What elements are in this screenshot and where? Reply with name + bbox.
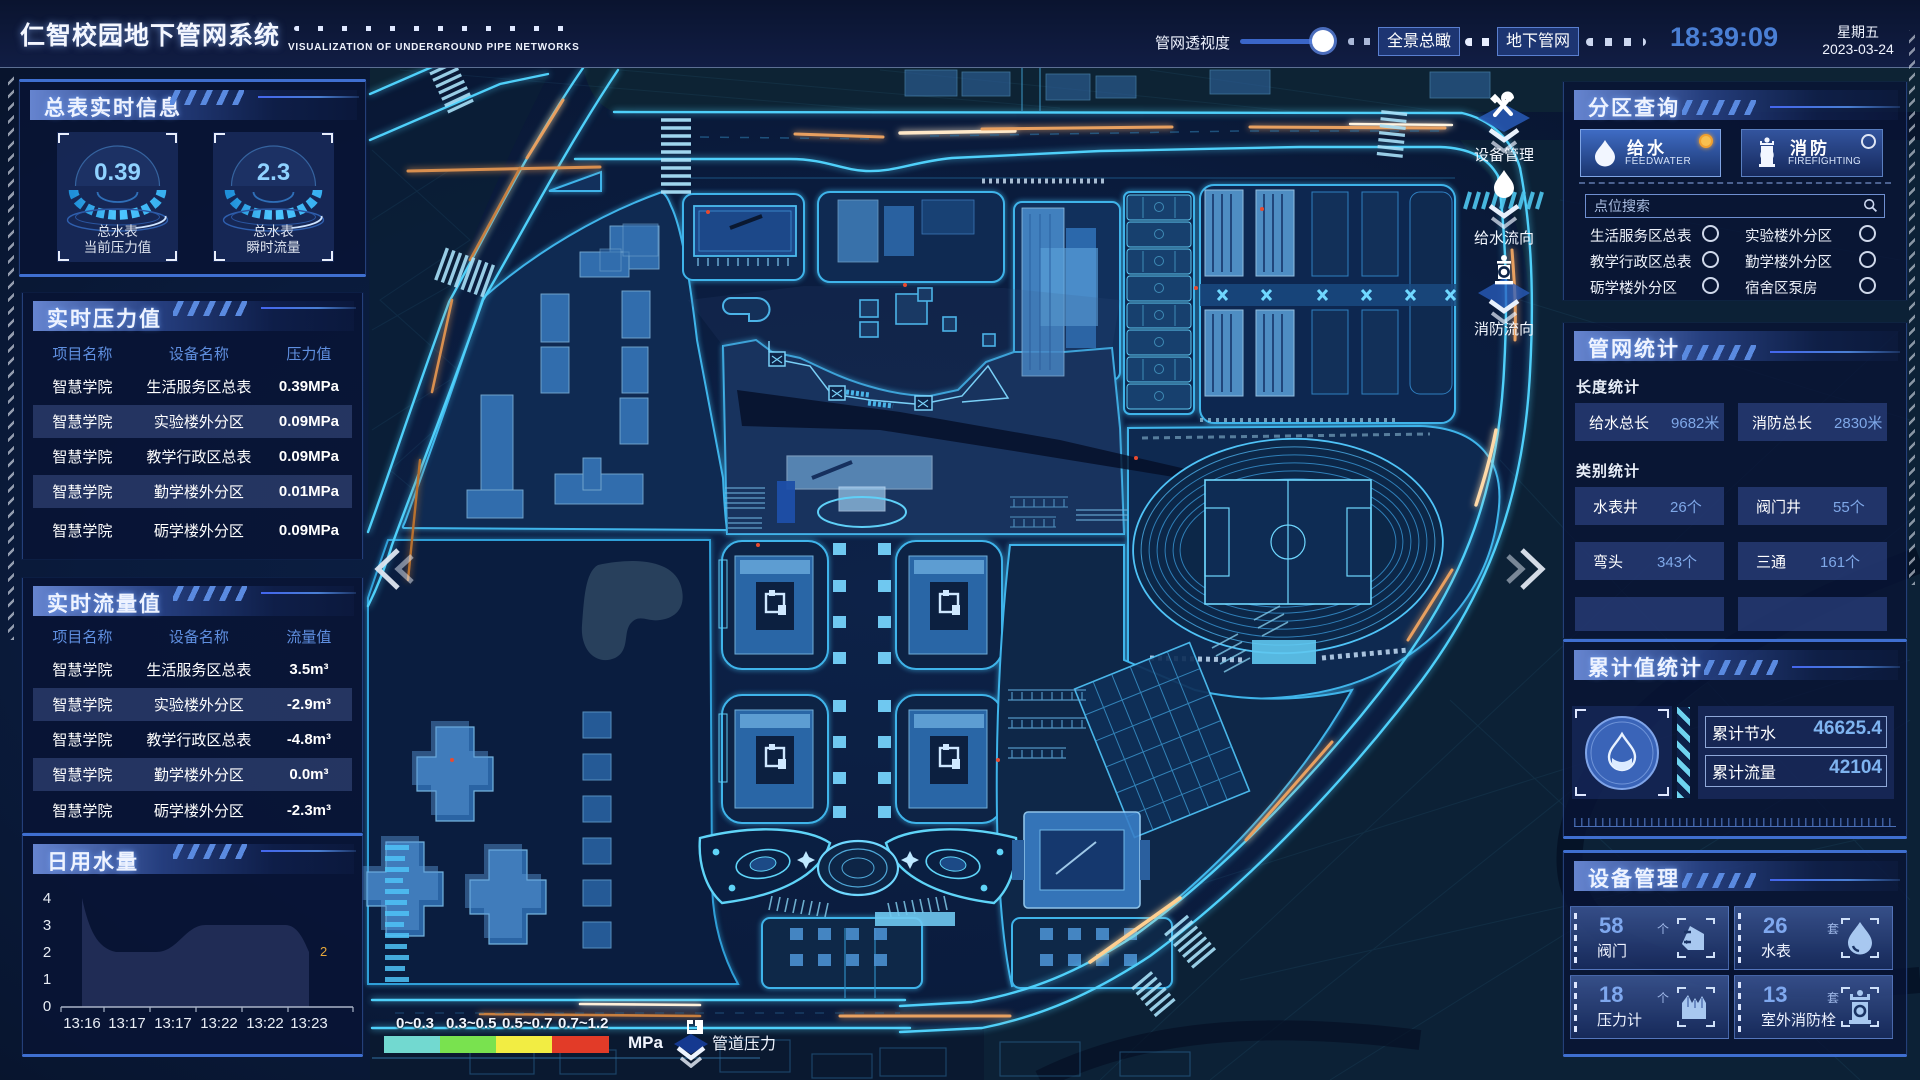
svg-text:3: 3 bbox=[43, 917, 51, 934]
svg-text:设备管理: 设备管理 bbox=[1474, 147, 1534, 164]
svg-text:给水流向: 给水流向 bbox=[1474, 230, 1534, 247]
svg-text:当前压力值: 当前压力值 bbox=[84, 239, 152, 255]
svg-text:13:22: 13:22 bbox=[246, 1015, 284, 1032]
svg-text:消防流向: 消防流向 bbox=[1474, 321, 1534, 338]
svg-text:2: 2 bbox=[43, 944, 51, 961]
svg-text:13:17: 13:17 bbox=[108, 1015, 146, 1032]
svg-text:瞬时流量: 瞬时流量 bbox=[247, 240, 301, 255]
svg-text:总水表: 总水表 bbox=[97, 224, 138, 239]
svg-text:2.3: 2.3 bbox=[257, 159, 290, 186]
svg-text:13:23: 13:23 bbox=[290, 1015, 328, 1032]
svg-text:总水表: 总水表 bbox=[253, 224, 294, 239]
svg-text:1: 1 bbox=[43, 971, 51, 988]
svg-text:2: 2 bbox=[320, 944, 327, 959]
svg-text:4: 4 bbox=[43, 890, 51, 907]
svg-text:13:22: 13:22 bbox=[200, 1015, 238, 1032]
svg-text:0.39: 0.39 bbox=[94, 159, 141, 186]
svg-text:13:16: 13:16 bbox=[63, 1015, 101, 1032]
svg-text:0: 0 bbox=[43, 998, 51, 1015]
svg-text:13:17: 13:17 bbox=[154, 1015, 192, 1032]
